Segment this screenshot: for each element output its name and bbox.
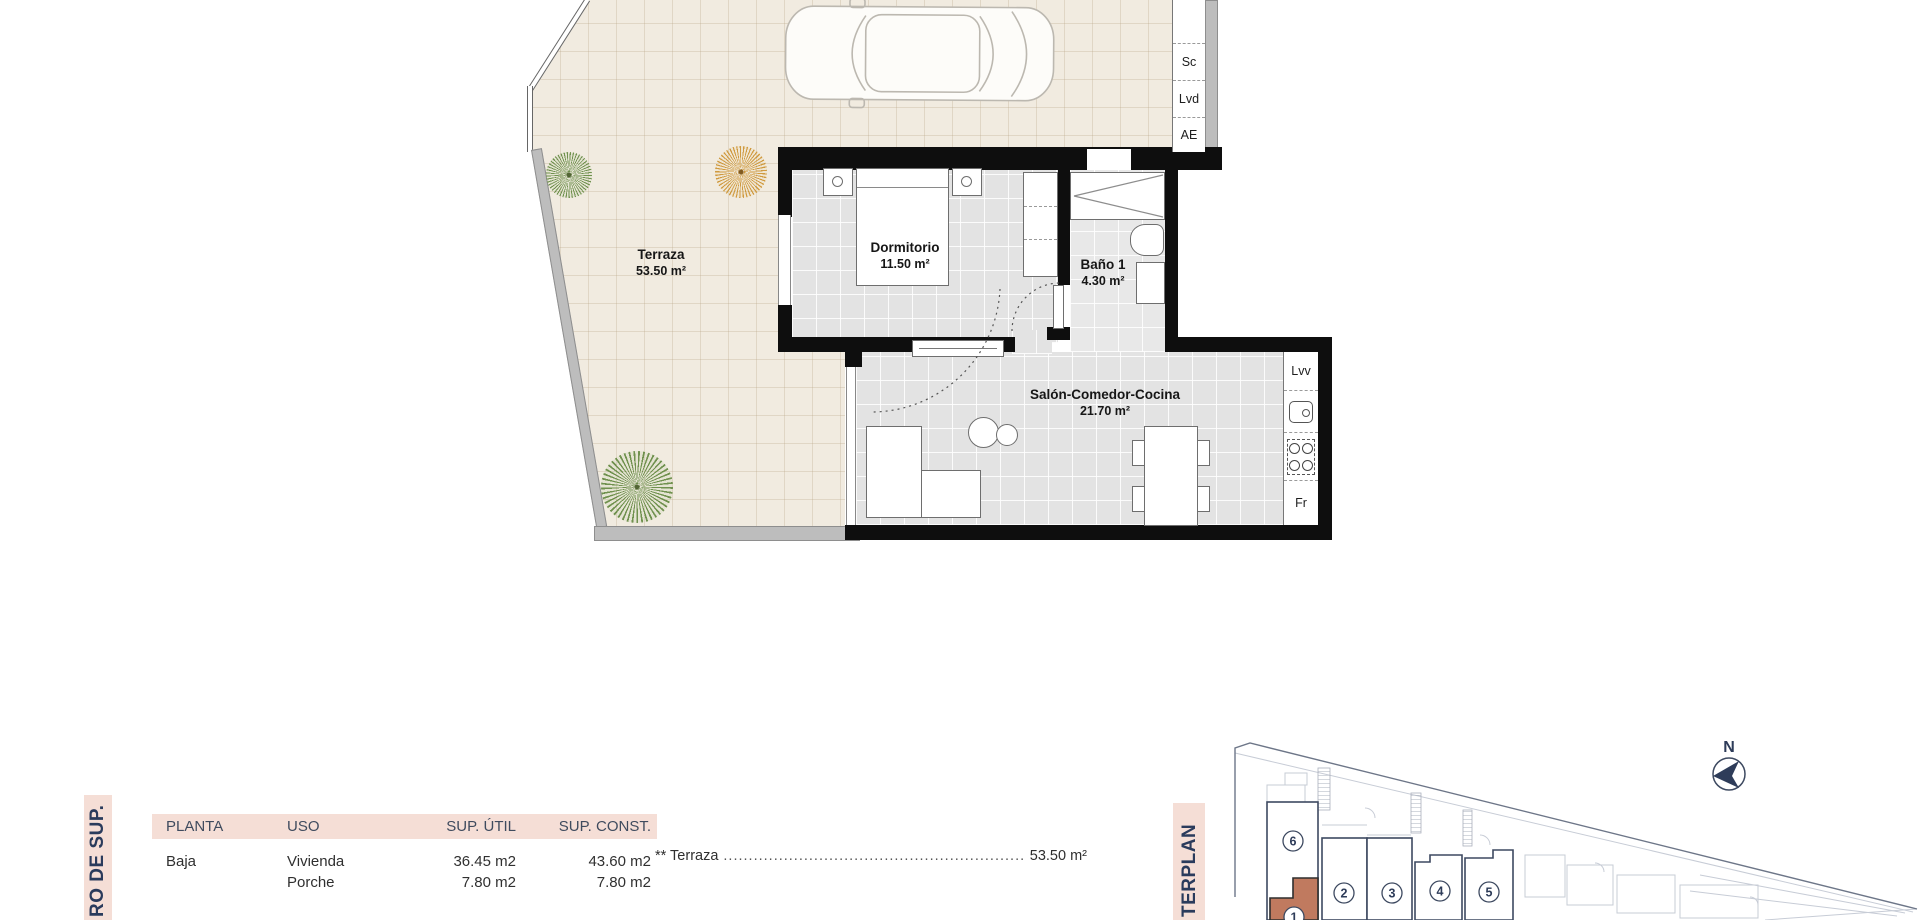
chair [1197, 486, 1210, 512]
footnote-leader-dots: ........................................… [723, 848, 1024, 864]
sink-drain-icon [1302, 409, 1310, 417]
sliding-door-line [919, 348, 997, 349]
room-area: 21.70 m² [1005, 403, 1205, 419]
bed-pillow-line [857, 187, 948, 188]
sofa [866, 426, 922, 518]
coffee-table [996, 424, 1018, 446]
unit-2-outline [1322, 838, 1367, 920]
burner-icon [1289, 443, 1300, 454]
col-header-sup-util: SUP. ÚTIL [402, 818, 522, 835]
hob-icon [1287, 439, 1315, 475]
masterplan: 6 2 3 4 5 1 N [1225, 735, 1920, 920]
masterplan-strip-label: TERPLAN [1179, 824, 1201, 917]
room-name: Salón-Comedor-Cocina [1005, 387, 1205, 403]
unit-3-outline [1367, 838, 1412, 920]
closet-label: Lvd [1179, 92, 1199, 106]
kitchen-sink-cell [1284, 390, 1318, 432]
col-header-sup-const: SUP. CONST. [522, 818, 657, 835]
lamp-icon [832, 176, 843, 187]
col-header-planta: PLANTA [152, 818, 287, 835]
col-header-uso: USO [287, 818, 402, 835]
unit-number-4: 4 [1437, 885, 1444, 899]
cell-util: 7.80 m2 [402, 874, 522, 891]
unit-number-2: 2 [1341, 887, 1348, 901]
chair [1132, 486, 1145, 512]
plant-icon [546, 152, 592, 198]
doorway-floor [1012, 330, 1052, 354]
boundary-wall [1205, 0, 1218, 153]
toilet [1130, 224, 1164, 256]
sofa-chaise [921, 470, 981, 518]
wall-opening [1087, 149, 1131, 170]
room-label-dormitorio: Dormitorio 11.50 m² [835, 240, 975, 272]
burner-icon [1302, 460, 1313, 471]
cell-uso: Porche [287, 874, 402, 891]
closet-label: Sc [1182, 55, 1197, 69]
room-name: Baño 1 [1053, 257, 1153, 273]
closet-cell: Sc [1173, 43, 1205, 80]
wardrobe-shelf-line [1024, 239, 1057, 240]
utility-closet-column: Sc Lvd AE [1172, 0, 1205, 152]
wardrobe-shelf-line [1024, 206, 1057, 207]
door-leaf [1053, 285, 1064, 329]
plant-icon [601, 451, 673, 523]
cell-const: 43.60 m2 [522, 853, 657, 870]
wall-segment [778, 147, 1222, 170]
dishwasher-cell: Lvv [1284, 352, 1318, 390]
shower-tray [1070, 172, 1165, 220]
chair [1132, 440, 1145, 466]
room-name: Dormitorio [835, 240, 975, 256]
compass-n-label: N [1723, 739, 1735, 756]
dining-table [1144, 426, 1198, 526]
room-area: 4.30 m² [1053, 273, 1153, 289]
cell-util: 36.45 m2 [402, 853, 522, 870]
room-label-salon: Salón-Comedor-Cocina 21.70 m² [1005, 387, 1205, 419]
footnote-label: ** Terraza [655, 848, 718, 864]
chair [1197, 440, 1210, 466]
burner-icon [1302, 443, 1313, 454]
wall-segment [1165, 170, 1178, 352]
boundary-wall [594, 526, 860, 541]
terrace-sliding-door [846, 367, 856, 525]
room-label-terraza: Terraza 53.50 m² [591, 247, 731, 279]
unit-number-5: 5 [1486, 886, 1493, 900]
kitchen-sink-icon [1289, 401, 1313, 423]
burner-icon [1289, 460, 1300, 471]
bedroom-window [778, 215, 791, 307]
cell-planta: Baja [152, 853, 287, 870]
table-row: Porche 7.80 m2 7.80 m2 [152, 872, 657, 893]
cell-const: 7.80 m2 [522, 874, 657, 891]
glass-railing [527, 86, 533, 152]
dishwasher-label: Lvv [1291, 364, 1310, 378]
wall-segment [778, 147, 792, 217]
closet-label: AE [1181, 128, 1198, 142]
unit-number-6: 6 [1290, 835, 1297, 849]
footnote-value: 53.50 m² [1030, 848, 1087, 864]
room-area: 11.50 m² [835, 256, 975, 272]
wall-segment [845, 343, 862, 367]
wall-segment [1318, 345, 1332, 540]
fridge-label: Fr [1295, 496, 1307, 510]
spacer [152, 839, 657, 851]
coffee-table [968, 417, 999, 448]
north-compass-icon: N [1713, 739, 1745, 790]
closet-cell: AE [1173, 117, 1205, 152]
surface-table-header: PLANTA USO SUP. ÚTIL SUP. CONST. [152, 814, 657, 839]
closet-cell: Lvd [1173, 80, 1205, 117]
unit-number-1: 1 [1291, 911, 1298, 920]
fridge-cell: Fr [1284, 480, 1318, 525]
surface-table: PLANTA USO SUP. ÚTIL SUP. CONST. Baja Vi… [152, 814, 657, 893]
terraza-footnote: ** Terraza .............................… [655, 848, 1087, 864]
wall-segment [1165, 337, 1332, 352]
kitchen-column: Lvv Fr [1283, 352, 1318, 525]
room-name: Terraza [591, 247, 731, 263]
room-label-bano: Baño 1 4.30 m² [1053, 257, 1153, 289]
left-title-strip-label: RO DE SUP. [87, 805, 109, 917]
hob-cell [1284, 432, 1318, 480]
closet-cell [1173, 0, 1205, 43]
cell-uso: Vivienda [287, 853, 402, 870]
wall-segment [845, 525, 1332, 540]
tree-icon [715, 146, 767, 198]
floorplan-canvas: Sc Lvd AE Lvv Fr [0, 0, 1920, 920]
room-area: 53.50 m² [591, 263, 731, 279]
table-row: Baja Vivienda 36.45 m2 43.60 m2 [152, 851, 657, 872]
unit-number-3: 3 [1389, 887, 1396, 901]
lamp-icon [961, 176, 972, 187]
sliding-door-panel [912, 340, 1004, 357]
